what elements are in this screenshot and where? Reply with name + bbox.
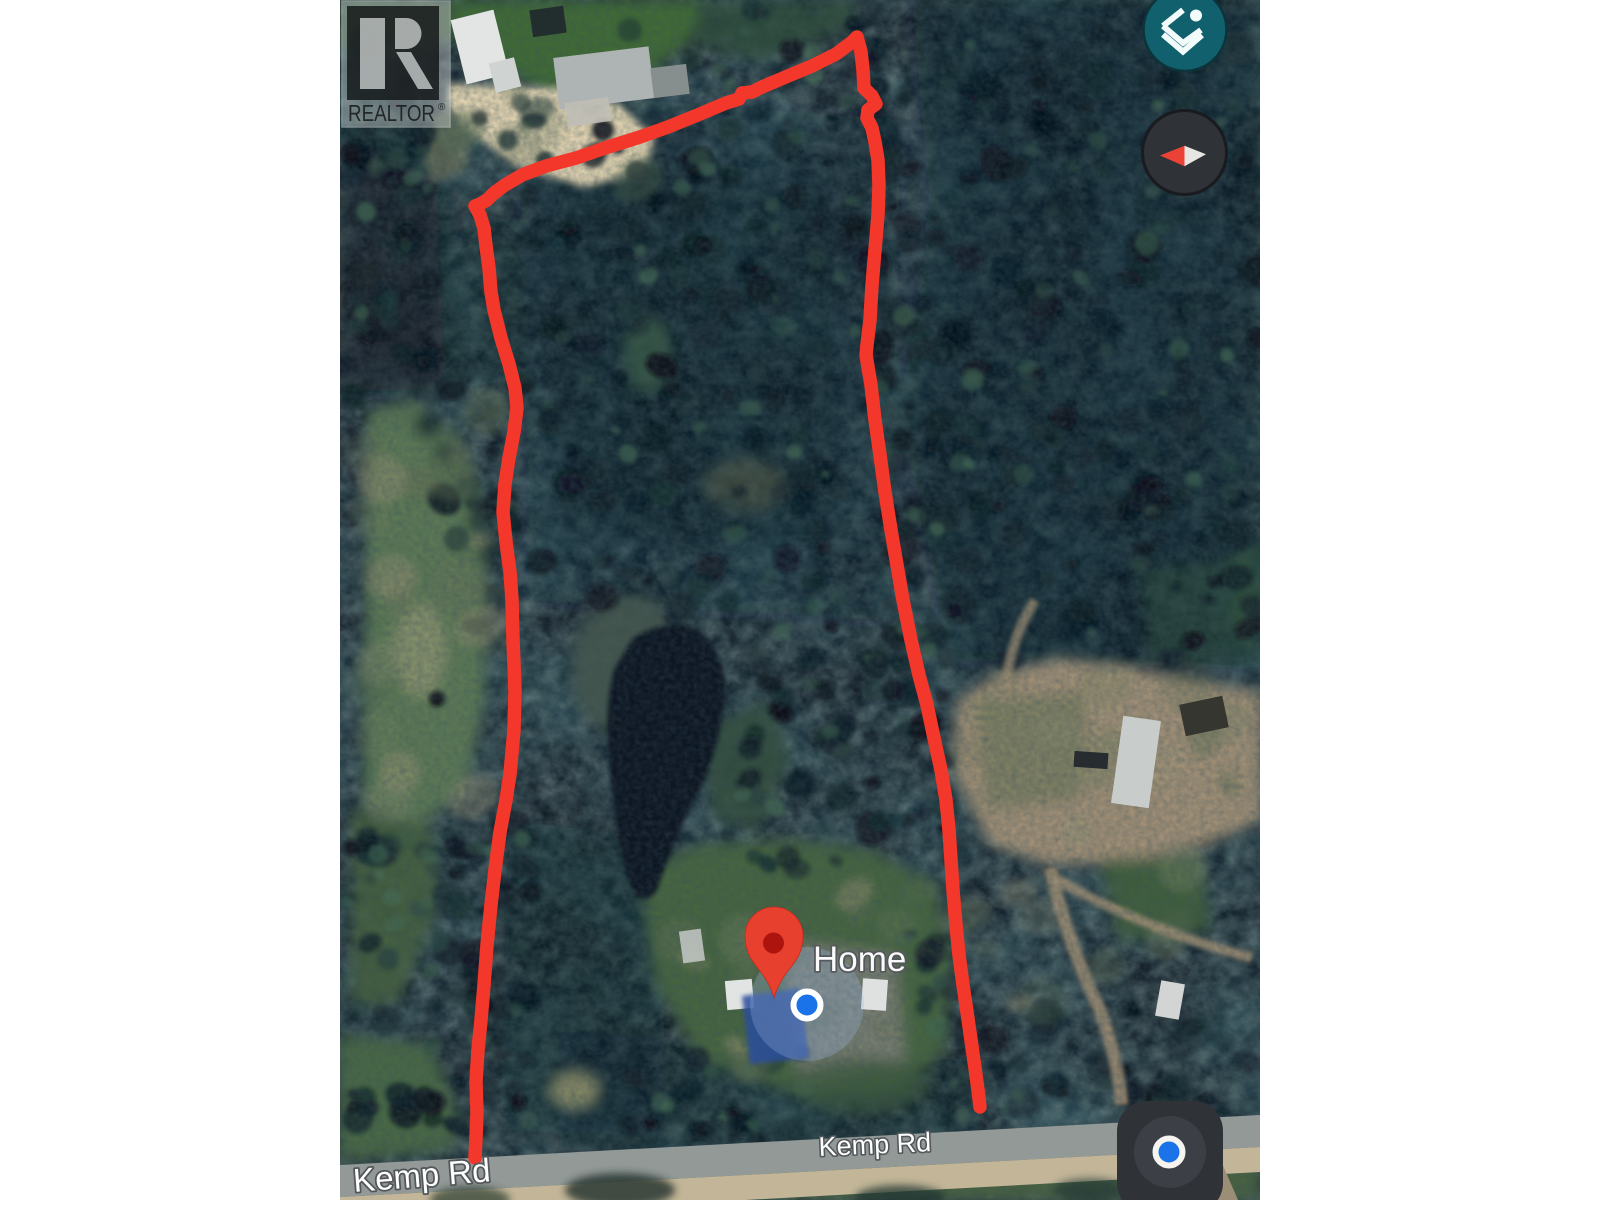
- svg-text:®: ®: [438, 102, 446, 113]
- svg-text:Home: Home: [813, 940, 906, 979]
- svg-text:REALTOR: REALTOR: [348, 100, 435, 126]
- svg-text:Kemp Rd: Kemp Rd: [818, 1127, 932, 1162]
